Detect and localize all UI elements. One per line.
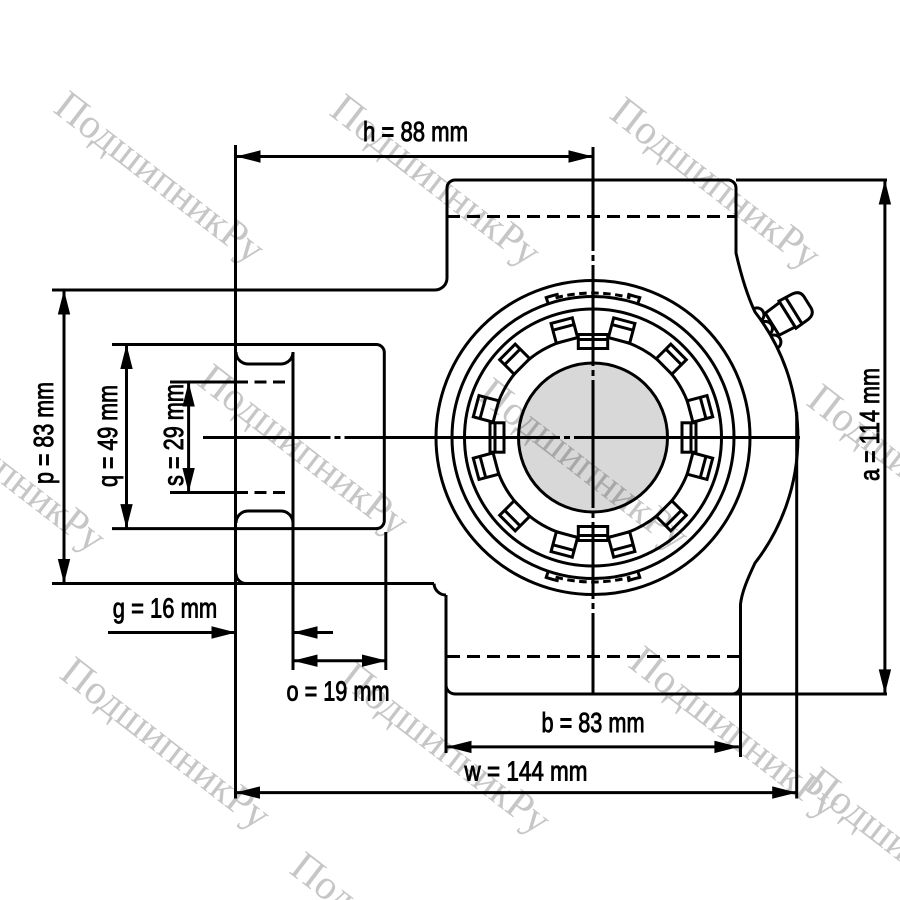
svg-text:b = 83 mm: b = 83 mm [542, 707, 645, 738]
svg-text:s = 29 mm: s = 29 mm [158, 384, 189, 486]
svg-text:g = 16 mm: g = 16 mm [113, 593, 218, 624]
svg-text:q = 49 mm: q = 49 mm [92, 385, 123, 487]
